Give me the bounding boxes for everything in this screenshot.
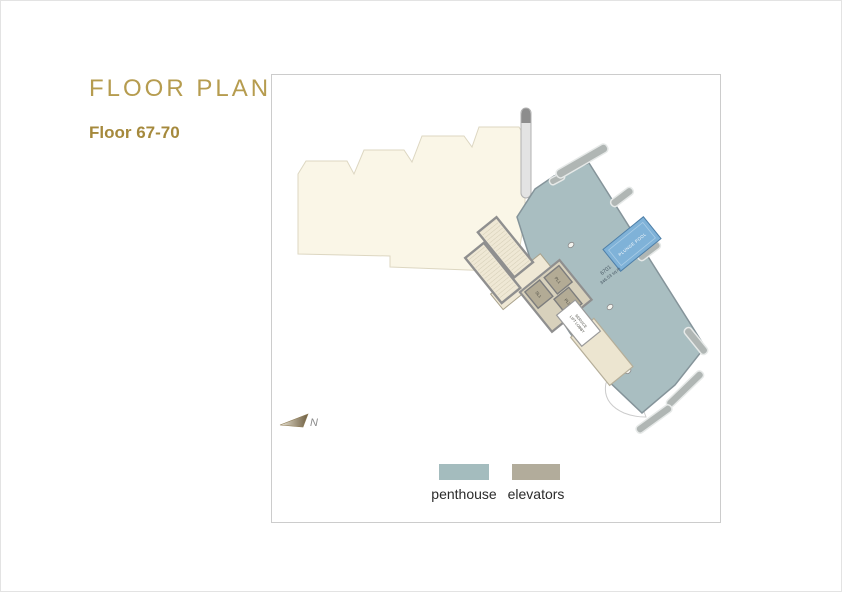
page: FLOOR PLAN Floor 67-70 xyxy=(0,0,842,592)
north-arrow: N xyxy=(280,414,318,429)
page-header: FLOOR PLAN Floor 67-70 xyxy=(89,75,269,143)
legend-label-elevators: elevators xyxy=(508,486,565,502)
floor-plan-panel: PLUNGE POOL 6701 346.53 sq.m xyxy=(271,74,721,523)
floor-range-subtitle: Floor 67-70 xyxy=(89,123,269,143)
north-label: N xyxy=(310,417,318,429)
floor-plan-drawing: PLUNGE POOL 6701 346.53 sq.m xyxy=(272,75,720,522)
legend-swatch-elevators xyxy=(512,464,560,480)
legend: penthouse elevators xyxy=(431,464,564,502)
legend-swatch-penthouse xyxy=(439,464,489,480)
legend-label-penthouse: penthouse xyxy=(431,486,497,502)
page-title: FLOOR PLAN xyxy=(89,75,269,103)
building-mast xyxy=(521,108,531,198)
